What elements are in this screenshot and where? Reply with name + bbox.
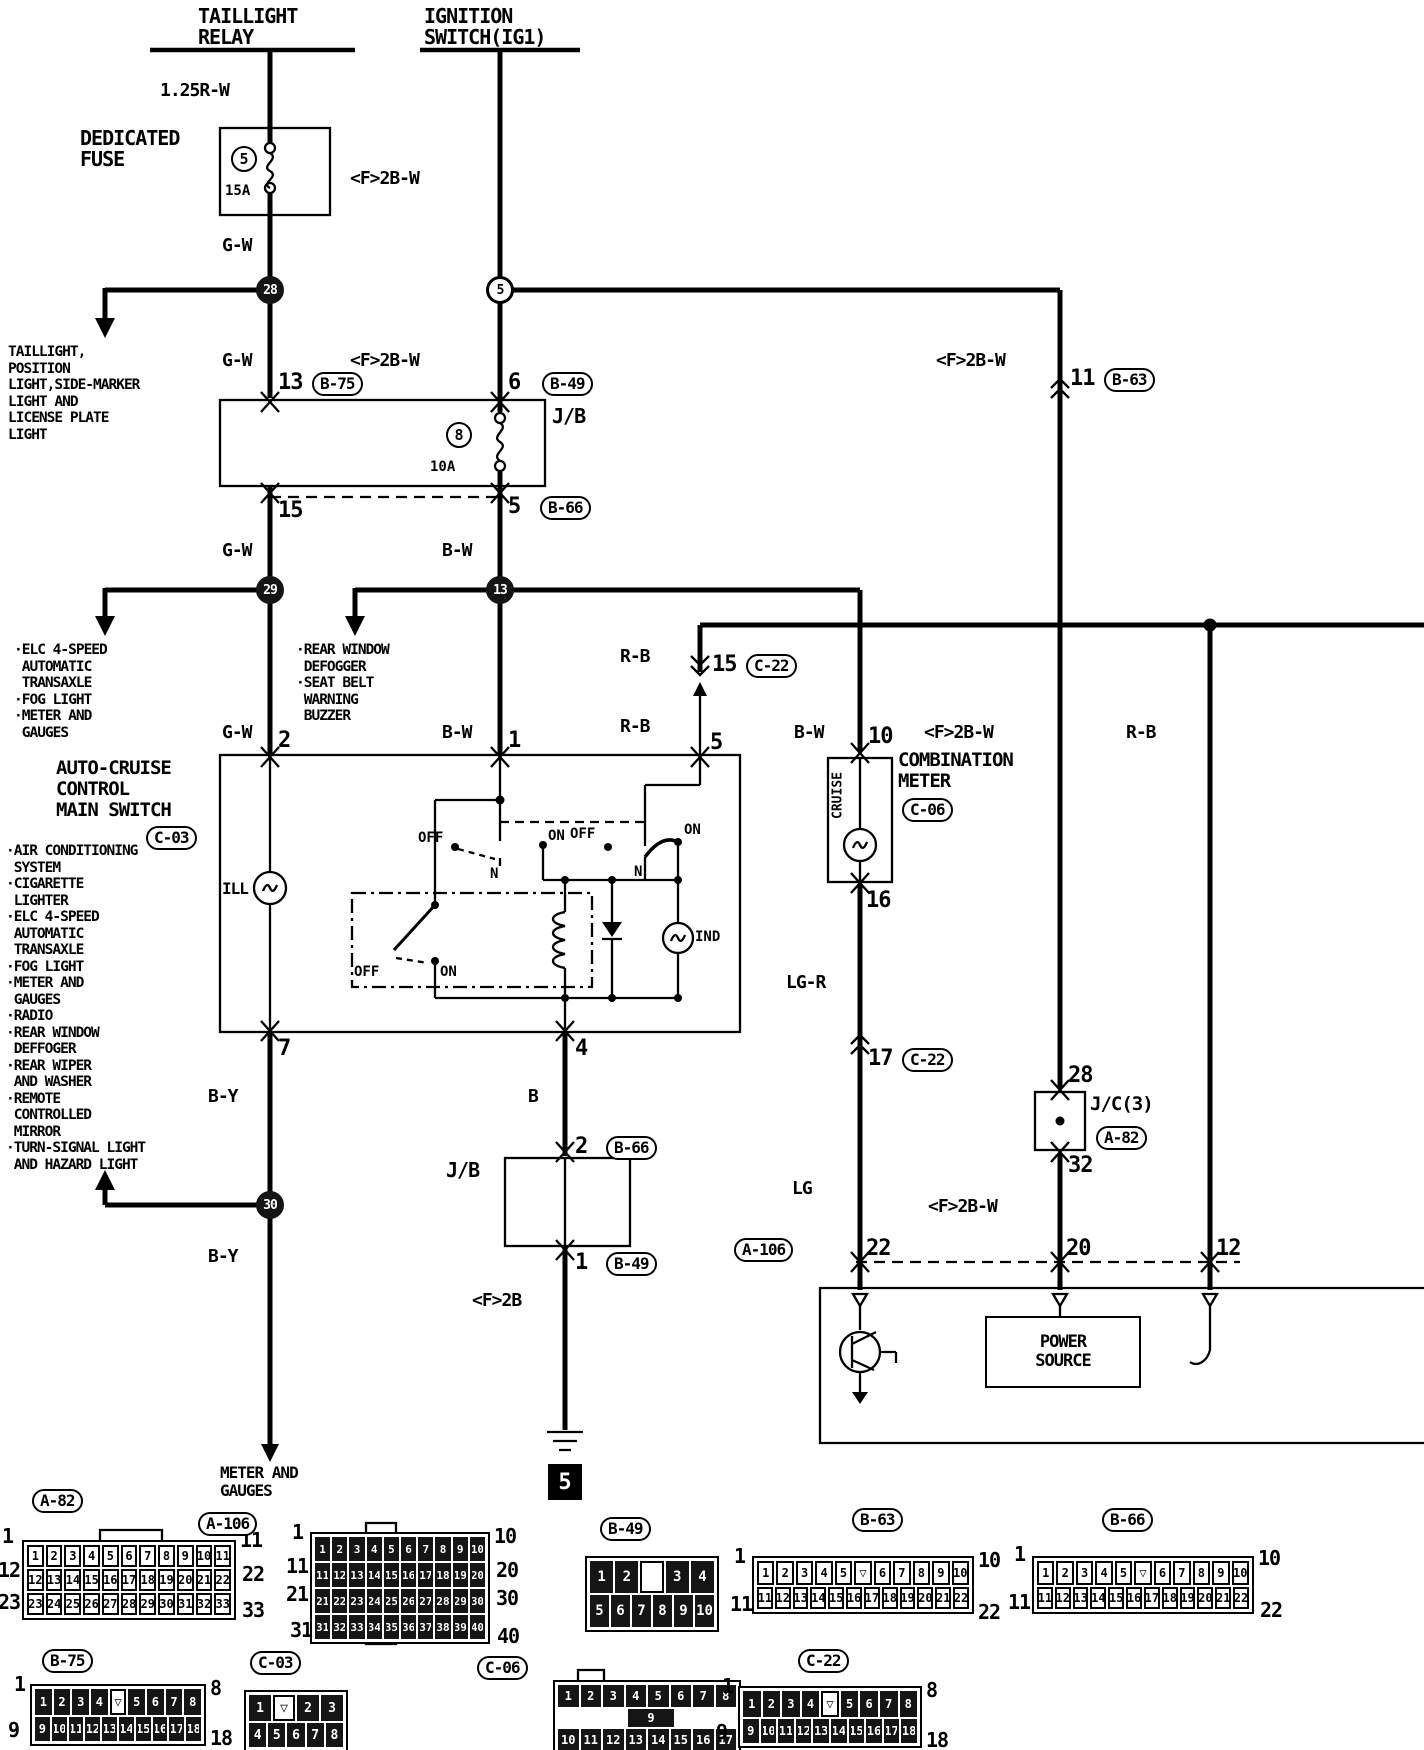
connector-pin: 19	[158, 1569, 175, 1591]
connector-pin: 14	[119, 1717, 134, 1741]
connector-pin: 6	[121, 1545, 138, 1567]
connector-ref-b66: B-66	[606, 1136, 657, 1160]
text-line: AND WASHER	[6, 1074, 145, 1091]
junction-block2-box	[505, 1158, 630, 1246]
text-line: ·REAR WINDOW	[6, 1025, 145, 1042]
connector-pin: 22	[214, 1569, 231, 1591]
connector-corner-pin: 1	[722, 1674, 733, 1698]
connector-corner-pin: 33	[242, 1598, 264, 1622]
connector-pin: 12	[1055, 1587, 1071, 1609]
text-line: ·REMOTE	[6, 1091, 145, 1108]
wire-label-by: B-Y	[208, 1086, 238, 1107]
connector-pin: 19	[453, 1563, 468, 1587]
connector-pin: 15	[671, 1729, 692, 1750]
connector-pin: 17	[884, 1719, 900, 1743]
pin-22: 22	[866, 1236, 891, 1261]
connector-pin: 1	[757, 1561, 774, 1585]
connector-pin: 14	[1090, 1587, 1106, 1609]
jb2-label: J/B	[446, 1160, 479, 1181]
connector-corner-pin: 18	[210, 1726, 232, 1750]
pin-12: 12	[1216, 1236, 1241, 1261]
connector-pin: 12	[775, 1587, 791, 1609]
antenna-symbol	[1190, 1306, 1210, 1364]
connector-pin: 3	[1076, 1561, 1093, 1585]
connector-bracket	[100, 1530, 162, 1540]
connector-pin: 25	[384, 1589, 399, 1613]
connector-pin: 20	[1197, 1587, 1213, 1609]
wire-label-bw: B-W	[442, 540, 472, 561]
fuse8-rating: 10A	[430, 459, 455, 475]
pin-2: 2	[278, 728, 290, 753]
text-line: TAILLIGHT,	[8, 344, 139, 361]
text-line: COMBINATION	[898, 750, 1013, 771]
connector-pin: 34	[367, 1615, 382, 1639]
text-line: AUTO-CRUISE	[56, 758, 171, 779]
connector-ref-c03: C-03	[146, 826, 197, 850]
connector-corner-pin: 30	[496, 1586, 518, 1610]
connector-corner-pin: 11	[286, 1554, 308, 1578]
connector-pin: 22	[1233, 1587, 1249, 1609]
connector-pin: 16	[102, 1569, 119, 1591]
connector-pin: 5	[1115, 1561, 1132, 1585]
text-line: ·FOG LIGHT	[6, 959, 145, 976]
diode-symbol	[602, 922, 622, 937]
connector-pin: 18	[1162, 1587, 1178, 1609]
splice-node-29: 29	[256, 576, 284, 604]
fuse8-circle: 8	[446, 422, 472, 448]
connector-corner-pin: 1	[14, 1672, 25, 1696]
connector-pin: 12	[85, 1717, 100, 1741]
connector-pin: 9	[628, 1709, 674, 1727]
meter-title: COMBINATIONMETER	[898, 750, 1013, 792]
text-line: DEFFOGER	[6, 1041, 145, 1058]
connector-pin: 9	[674, 1595, 693, 1627]
connector-pin: 7	[880, 1691, 898, 1717]
connector-pin: 7	[166, 1689, 183, 1715]
connector-pin: 9	[177, 1545, 194, 1567]
connector-pin: 6	[874, 1561, 891, 1585]
text-line: CONTROL	[56, 779, 171, 800]
connector-corner-pin: 40	[497, 1624, 519, 1648]
connector-pin: 16	[846, 1587, 862, 1609]
connector-pin: 6	[1154, 1561, 1171, 1585]
n-label: N	[490, 866, 498, 882]
text-line: ·REAR WINDOW	[296, 642, 389, 659]
connector-pin: 10	[52, 1717, 67, 1741]
text-line: SOURCE	[1035, 1352, 1090, 1371]
connector-pin: 13	[1073, 1587, 1089, 1609]
connector-pin: 31	[177, 1593, 194, 1615]
text-line: AUTOMATIC	[6, 926, 145, 943]
connector-pin: 16	[693, 1729, 714, 1750]
text-line: POWER	[1040, 1333, 1086, 1352]
connector-pin: 19	[1180, 1587, 1196, 1609]
connector-pin: 4	[249, 1723, 266, 1747]
connector-pin: 22	[332, 1589, 347, 1613]
connector-pin: 11	[757, 1587, 773, 1609]
connector-pin: 8	[1193, 1561, 1210, 1585]
text-line: TAILLIGHT	[198, 6, 297, 27]
connector-pin: 10	[1232, 1561, 1249, 1585]
wiring-lines	[0, 0, 1424, 1750]
connector-ref-c22: C-22	[746, 654, 797, 678]
wire-label-125rw: 1.25R-W	[160, 80, 229, 101]
wire-label-f2bw: <F>2B-W	[928, 1196, 997, 1217]
splice-node-28: 28	[256, 276, 284, 304]
connector-pin: 40	[470, 1615, 485, 1639]
wire-label-bw: B-W	[442, 722, 472, 743]
connector-label-b66: B-66	[1102, 1508, 1153, 1532]
taillight-relay-header: TAILLIGHTRELAY	[198, 6, 297, 48]
connector-pin: 12	[27, 1569, 44, 1591]
wire-label-lgr: LG-R	[786, 972, 825, 993]
connector-label-b75: B-75	[42, 1649, 93, 1673]
connector-b66: 12345▽678910111213141516171819202122	[1032, 1556, 1254, 1614]
splice-node-30: 30	[256, 1191, 284, 1219]
connector-notch: ▽	[1134, 1561, 1151, 1585]
connector-pin: 5	[841, 1691, 859, 1717]
connector-pin: 5	[835, 1561, 852, 1585]
text-line: WARNING	[296, 692, 389, 709]
connector-pin: 25	[64, 1593, 81, 1615]
text-line: LIGHT AND	[8, 394, 139, 411]
connector-pin: 16	[1126, 1587, 1142, 1609]
fuse-element	[497, 423, 503, 461]
connector-pin: 19	[900, 1587, 916, 1609]
text-line: ·SEAT BELT	[296, 675, 389, 692]
connector-pin: 21	[1215, 1587, 1231, 1609]
connector-corner-pin: 1	[1014, 1542, 1025, 1566]
connector-pin: 16	[866, 1719, 882, 1743]
connector-pin: 21	[315, 1589, 330, 1613]
text-line: FUSE	[80, 149, 179, 170]
connector-pin: 3	[796, 1561, 813, 1585]
text-line: LIGHT	[8, 427, 139, 444]
connector-pin: 17	[121, 1569, 138, 1591]
wire-label-gw: G-W	[222, 350, 252, 371]
connector-pin: 23	[27, 1593, 44, 1615]
connector-pin: 10	[695, 1595, 714, 1627]
connector-pin: 2	[1056, 1561, 1073, 1585]
pin-10: 10	[868, 724, 893, 749]
off-label: OFF	[354, 964, 379, 980]
pin-15-c22: 15	[712, 652, 737, 677]
connector-pin: 6	[671, 1685, 692, 1707]
connector-pin: 10	[761, 1719, 777, 1743]
connector-pin: 3	[349, 1537, 364, 1561]
text-line: GAUGES	[220, 1482, 298, 1500]
connector-pin: 38	[435, 1615, 450, 1639]
connector-label-c06: C-06	[477, 1656, 528, 1680]
connector-pin: 3	[64, 1545, 81, 1567]
text-line: ·METER AND	[6, 975, 145, 992]
connector-pin: 4	[802, 1691, 820, 1717]
connector-pin: 12	[796, 1719, 812, 1743]
pin-4: 4	[575, 1036, 587, 1061]
text-line: TRANSAXLE	[6, 942, 145, 959]
text-line: SWITCH(IG1)	[424, 27, 545, 48]
connector-pin: 7	[418, 1537, 433, 1561]
ignition-switch-header: IGNITIONSWITCH(IG1)	[424, 6, 545, 48]
transistor-symbol	[840, 1332, 880, 1372]
connector-pin: 18	[186, 1717, 201, 1741]
connector-label-c22: C-22	[798, 1649, 849, 1673]
connector-pin: 18	[901, 1719, 917, 1743]
connector-b49: 12345678910	[585, 1556, 719, 1632]
connector-pin: 32	[332, 1615, 347, 1639]
connector-pin: 9	[35, 1717, 50, 1741]
connector-pin: 24	[46, 1593, 63, 1615]
text-line: CONTROLLED	[6, 1107, 145, 1124]
pin-5: 5	[710, 730, 722, 755]
connector-pin: 17	[169, 1717, 184, 1741]
connector-pin: 11	[315, 1563, 330, 1587]
text-line: LIGHTER	[6, 893, 145, 910]
connector-corner-pin: 18	[926, 1728, 948, 1750]
connector-label-a106: A-106	[198, 1512, 257, 1536]
connector-pin: 7	[893, 1561, 910, 1585]
connector-pin: 14	[367, 1563, 382, 1587]
connector-pin: 2	[615, 1561, 638, 1593]
connector-pin: 8	[158, 1545, 175, 1567]
connector-pin: 3	[666, 1561, 689, 1593]
connector-label-a82: A-82	[32, 1489, 83, 1513]
pin-5-jb: 5	[508, 494, 520, 519]
connector-pin: 5	[590, 1595, 609, 1627]
text-line: IGNITION	[424, 6, 545, 27]
connector-pin: 24	[367, 1589, 382, 1613]
text-line: ·CIGARETTE	[6, 876, 145, 893]
pin-1: 1	[508, 728, 520, 753]
connector-pin: 8	[900, 1691, 918, 1717]
connector-pin: 4	[91, 1689, 108, 1715]
connector-corner-pin: 1	[2, 1524, 13, 1548]
wire-label-gw: G-W	[222, 722, 252, 743]
wire-label-b: B	[528, 1086, 538, 1107]
connector-corner-pin: 22	[978, 1600, 1000, 1624]
connector-pin: 17	[418, 1563, 433, 1587]
cruise-vertical-label: CRUISE	[831, 764, 846, 828]
connector-pin: 21	[196, 1569, 213, 1591]
connector-pin: 26	[401, 1589, 416, 1613]
connector-pin: 1	[1037, 1561, 1054, 1585]
connector-pin: 20	[470, 1563, 485, 1587]
connector-pin: 7	[693, 1685, 714, 1707]
connector-pin: 3	[603, 1685, 624, 1707]
connector-pin: 8	[435, 1537, 450, 1561]
text-line: TRANSAXLE	[14, 675, 107, 692]
connector-pin: 29	[453, 1589, 468, 1613]
pin-17: 17	[868, 1046, 893, 1071]
connector-pin: 6	[860, 1691, 878, 1717]
wire-label-f2bw: <F>2B-W	[924, 722, 993, 743]
text-line: DEDICATED	[80, 128, 179, 149]
off-label: OFF	[570, 826, 595, 842]
connector-pin: 2	[776, 1561, 793, 1585]
connector-pin: 9	[1212, 1561, 1229, 1585]
n-label: N	[634, 864, 642, 880]
connector-pin: 3	[321, 1695, 343, 1721]
connector-corner-pin: 11	[730, 1592, 752, 1616]
wire-label-bw: B-W	[794, 722, 824, 743]
text-line: DEFOGGER	[296, 659, 389, 676]
connector-pin: 11	[778, 1719, 794, 1743]
text-line: AND HAZARD LIGHT	[6, 1157, 145, 1174]
text-line: ·ELC 4-SPEED	[14, 642, 107, 659]
connector-pin: 29	[139, 1593, 156, 1615]
connector-pin: 12	[332, 1563, 347, 1587]
connector-ref-b49: B-49	[542, 372, 593, 396]
wire-label-by: B-Y	[208, 1246, 238, 1267]
connector-pin: 1	[35, 1689, 52, 1715]
pin-1-b49: 1	[575, 1250, 587, 1275]
connector-b63: 12345▽678910111213141516171819202122	[752, 1556, 974, 1614]
connector-pin: 4	[691, 1561, 714, 1593]
connector-pin: 4	[815, 1561, 832, 1585]
connector-pin: 14	[831, 1719, 847, 1743]
text-line: AUTOMATIC	[14, 659, 107, 676]
connector-pin: 8	[184, 1689, 201, 1715]
connector-pin: 5	[128, 1689, 145, 1715]
connector-pin: 33	[214, 1593, 231, 1615]
connector-pin: 16	[153, 1717, 168, 1741]
text-line: ·ELC 4-SPEED	[6, 909, 145, 926]
connector-pin: 1	[558, 1685, 579, 1707]
connector-corner-pin: 11	[1008, 1590, 1030, 1614]
connector-pin: 2	[46, 1545, 63, 1567]
connector-ref-b66: B-66	[540, 496, 591, 520]
connector-pin: 15	[1108, 1587, 1124, 1609]
connector-gap	[640, 1561, 663, 1593]
connector-ref-b49: B-49	[606, 1252, 657, 1276]
connector-pin: 4	[626, 1685, 647, 1707]
pin-2-b66: 2	[575, 1134, 587, 1159]
connector-label-b49: B-49	[600, 1517, 651, 1541]
on-label: ON	[548, 828, 565, 844]
connector-corner-pin: 9	[716, 1720, 727, 1744]
connector-pin: 12	[603, 1729, 624, 1750]
pin-chevron	[261, 402, 279, 412]
connector-pin: 13	[793, 1587, 809, 1609]
text-line: ·FOG LIGHT	[14, 692, 107, 709]
text-line: LIGHT,SIDE-MARKER	[8, 377, 139, 394]
connector-pin: 26	[83, 1593, 100, 1615]
connector-notch: ▽	[273, 1695, 295, 1721]
text-line: ·METER AND	[14, 708, 107, 725]
connector-pin: 9	[743, 1719, 759, 1743]
connector-pin: 13	[813, 1719, 829, 1743]
pin-32: 32	[1068, 1153, 1093, 1178]
connector-pin: 7	[632, 1595, 651, 1627]
junction-block-box	[220, 400, 545, 486]
sidebar-loads-text: ·AIR CONDITIONING SYSTEM·CIGARETTE LIGHT…	[6, 843, 145, 1173]
pin-28: 28	[1068, 1063, 1093, 1088]
connector-pin: 11	[69, 1717, 84, 1741]
connector-pin: 15	[849, 1719, 865, 1743]
connector-pin: 1	[315, 1537, 330, 1561]
connector-corner-pin: 9	[8, 1718, 19, 1742]
bw-loads-text: ·REAR WINDOW DEFOGGER·SEAT BELT WARNING …	[296, 642, 389, 725]
wire-label-lg: LG	[792, 1178, 812, 1199]
pin-15: 15	[278, 498, 303, 523]
connector-pin: 2	[332, 1537, 347, 1561]
power-source-box: POWERSOURCE	[985, 1316, 1141, 1388]
ill-label: ILL	[222, 879, 248, 898]
connector-pin: 33	[349, 1615, 364, 1639]
connector-pin: 14	[810, 1587, 826, 1609]
connector-pin: 8	[326, 1723, 343, 1747]
wire-label-rb: R-B	[1126, 722, 1156, 743]
connector-pin: 7	[1173, 1561, 1190, 1585]
connector-b75: 1234▽56789101112131415161718	[30, 1684, 206, 1746]
pin-13: 13	[278, 370, 303, 395]
connector-corner-pin: 8	[926, 1678, 937, 1702]
connector-pin: 15	[828, 1587, 844, 1609]
connector-corner-pin: 23	[0, 1590, 20, 1614]
connector-pin: 1	[743, 1691, 761, 1717]
off-label: OFF	[418, 830, 443, 846]
wire-label-f2bw: <F>2B-W	[936, 350, 1005, 371]
connector-label-c03: C-03	[250, 1651, 301, 1675]
text-line: ·REAR WIPER	[6, 1058, 145, 1075]
connector-corner-pin: 1	[292, 1520, 303, 1544]
text-line: METER	[898, 771, 1013, 792]
connector-corner-pin: 8	[210, 1676, 221, 1700]
taillight-loads-text: TAILLIGHT,POSITIONLIGHT,SIDE-MARKERLIGHT…	[8, 344, 139, 443]
connector-pin: 7	[139, 1545, 156, 1567]
connector-pin: 4	[1095, 1561, 1112, 1585]
on-label: ON	[684, 822, 701, 838]
connector-pin: 2	[763, 1691, 781, 1717]
connector-notch: ▽	[854, 1561, 871, 1585]
connector-pin: 28	[121, 1593, 138, 1615]
jb-label: J/B	[552, 406, 585, 427]
wire-label-f2bw: <F>2B-W	[350, 168, 419, 189]
connector-pin: 4	[83, 1545, 100, 1567]
wire-label-gw: G-W	[222, 235, 252, 256]
connector-corner-pin: 10	[1258, 1546, 1280, 1570]
connector-pin: 15	[136, 1717, 151, 1741]
connector-pin: 20	[917, 1587, 933, 1609]
connector-pin: 11	[1037, 1587, 1053, 1609]
connector-ref-b63: B-63	[1104, 368, 1155, 392]
connector-pin: 10	[470, 1537, 485, 1561]
connector-pin: 32	[196, 1593, 213, 1615]
connector-corner-pin: 21	[286, 1582, 308, 1606]
pin-7: 7	[278, 1036, 290, 1061]
fuse-rating: 15A	[225, 183, 250, 199]
connector-pin: 13	[626, 1729, 647, 1750]
connector-pin: 5	[102, 1545, 119, 1567]
connector-a82: 1234567891011121314151617181920212223242…	[22, 1540, 236, 1620]
connector-pin: 14	[648, 1729, 669, 1750]
dedicated-fuse-label: DEDICATEDFUSE	[80, 128, 179, 170]
fuse-number-circle: 5	[231, 146, 257, 172]
connector-ref-c06: C-06	[902, 798, 953, 822]
connector-pin: 5	[648, 1685, 669, 1707]
connector-pin: 10	[952, 1561, 969, 1585]
connector-pin: 27	[418, 1589, 433, 1613]
text-line: POSITION	[8, 361, 139, 378]
connector-pin: 14	[64, 1569, 81, 1591]
wire-label-f2bw: <F>2B-W	[350, 350, 419, 371]
text-line: ·AIR CONDITIONING	[6, 843, 145, 860]
connector-pin: 7	[307, 1723, 324, 1747]
text-line: ·TURN-SIGNAL LIGHT	[6, 1140, 145, 1157]
connector-pin: 11	[581, 1729, 602, 1750]
wiring-diagram-page: TAILLIGHTRELAY IGNITIONSWITCH(IG1) 1.25R…	[0, 0, 1424, 1750]
connector-pin: 10	[196, 1545, 213, 1567]
